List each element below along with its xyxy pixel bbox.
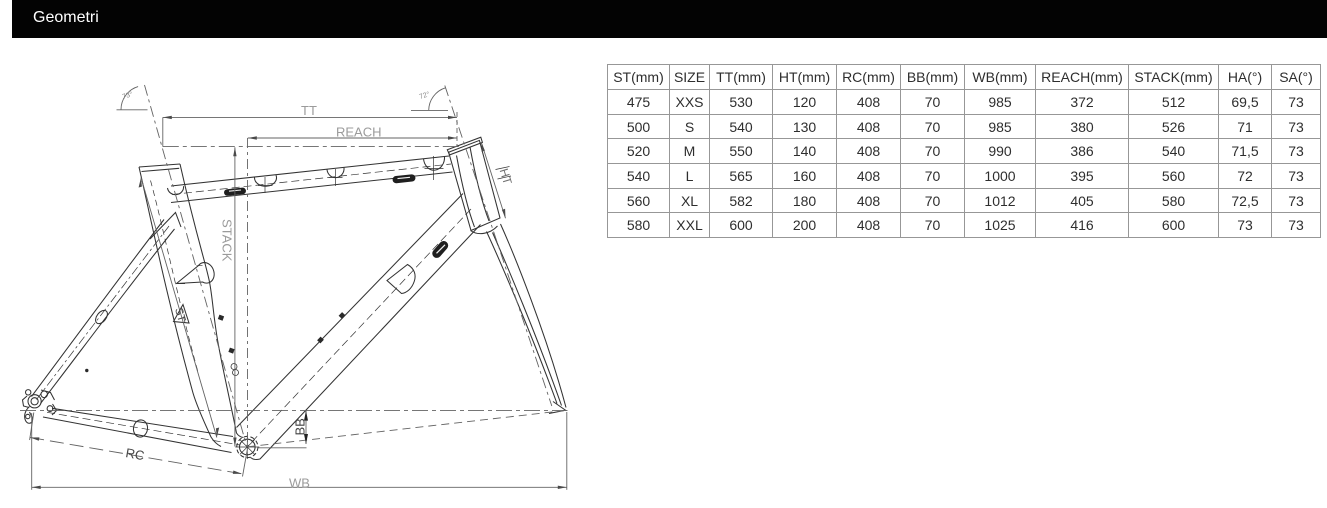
- svg-text:STACK: STACK: [220, 219, 235, 262]
- svg-text:TT: TT: [301, 103, 317, 118]
- svg-text:RC: RC: [124, 445, 145, 463]
- svg-text:73°: 73°: [121, 90, 134, 101]
- svg-text:72°: 72°: [418, 90, 431, 101]
- svg-text:WB: WB: [289, 476, 310, 491]
- svg-text:REACH: REACH: [336, 125, 382, 140]
- svg-text:HT: HT: [497, 167, 515, 187]
- svg-text:BB: BB: [293, 418, 308, 435]
